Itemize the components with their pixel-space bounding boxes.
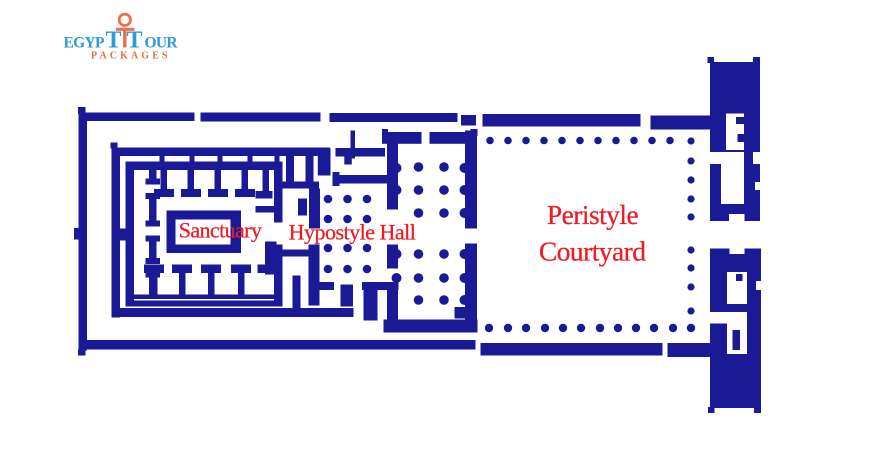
svg-text:PACKAGES: PACKAGES [91,51,171,62]
svg-text:EGYP: EGYP [64,35,105,52]
svg-text:Peristyle: Peristyle [547,199,639,230]
svg-text:Sanctuary: Sanctuary [179,218,262,243]
svg-text:OUR: OUR [145,35,179,52]
svg-text:Courtyard: Courtyard [539,236,646,267]
svg-text:Hypostyle Hall: Hypostyle Hall [289,220,416,245]
